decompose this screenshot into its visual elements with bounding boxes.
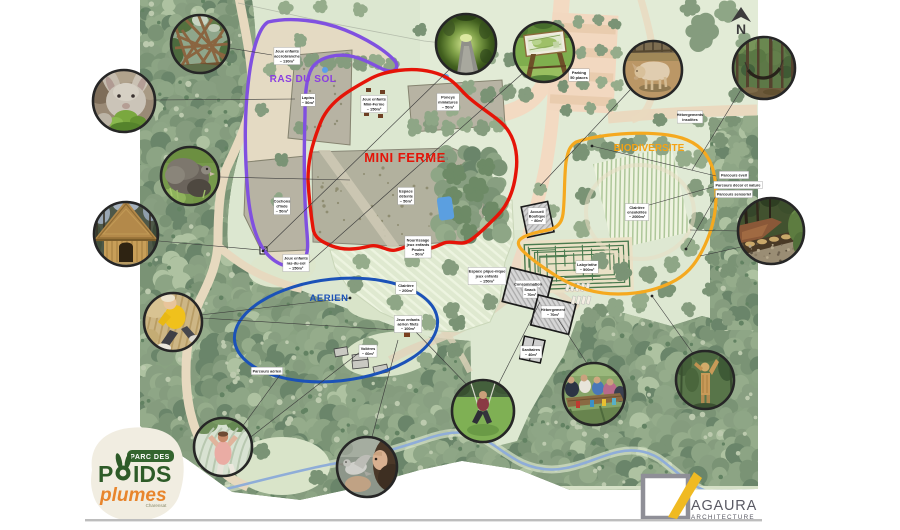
svg-text:Hébergement: Hébergement bbox=[541, 308, 566, 312]
svg-text:~ 70m²: ~ 70m² bbox=[524, 293, 537, 297]
svg-text:Boutique: Boutique bbox=[529, 215, 545, 219]
svg-text:P: P bbox=[98, 461, 113, 487]
svg-text:aérien filets: aérien filets bbox=[397, 323, 418, 327]
svg-text:Parcours aérien: Parcours aérien bbox=[253, 370, 282, 374]
svg-text:Parcours éveil: Parcours éveil bbox=[721, 174, 747, 178]
svg-text:RAS DU SOL: RAS DU SOL bbox=[270, 74, 337, 85]
svg-text:IDS: IDS bbox=[133, 461, 171, 487]
svg-text:insolites: insolites bbox=[682, 118, 697, 122]
svg-text:~ 50m²: ~ 50m² bbox=[276, 208, 289, 213]
svg-text:~ 40m²: ~ 40m² bbox=[525, 353, 538, 357]
svg-text:Sanitaires: Sanitaires bbox=[522, 348, 540, 352]
svg-text:Clairière: Clairière bbox=[629, 206, 644, 210]
svg-text:Accueil: Accueil bbox=[530, 210, 544, 214]
svg-text:~ 50m²: ~ 50m² bbox=[442, 104, 455, 109]
svg-text:AGAURA: AGAURA bbox=[691, 498, 757, 514]
svg-text:Hébergements: Hébergements bbox=[677, 113, 703, 117]
svg-text:Charensat: Charensat bbox=[146, 503, 168, 508]
svg-text:50 places: 50 places bbox=[570, 75, 588, 80]
svg-text:~ 200m²: ~ 200m² bbox=[399, 288, 414, 293]
svg-text:~ 500m²: ~ 500m² bbox=[580, 267, 595, 272]
svg-text:~ 100m²: ~ 100m² bbox=[401, 327, 416, 331]
svg-text:Volières: Volières bbox=[361, 347, 376, 351]
svg-text:~ 2 ha: ~ 2 ha bbox=[434, 156, 448, 162]
svg-text:Parcours décor et nature: Parcours décor et nature bbox=[716, 184, 761, 188]
svg-text:BIODIVERSITE: BIODIVERSITE bbox=[614, 143, 685, 154]
svg-text:~ 50m²: ~ 50m² bbox=[302, 100, 315, 105]
svg-text:Snack: Snack bbox=[524, 288, 536, 292]
svg-text:~ 50m²: ~ 50m² bbox=[412, 252, 425, 257]
svg-text:AERIEN: AERIEN bbox=[310, 293, 349, 304]
svg-text:~ 130m²: ~ 130m² bbox=[280, 58, 295, 63]
svg-text:~ 70m²: ~ 70m² bbox=[547, 313, 560, 317]
svg-text:~ 50m²: ~ 50m² bbox=[400, 198, 413, 203]
svg-text:~ 150m²: ~ 150m² bbox=[480, 278, 495, 283]
svg-text:Jeux enfants: Jeux enfants bbox=[396, 318, 419, 322]
svg-text:~ 2000m²: ~ 2000m² bbox=[629, 215, 646, 219]
svg-text:ensoleillée: ensoleillée bbox=[627, 211, 646, 215]
svg-text:Parcours sensoriel: Parcours sensoriel bbox=[717, 193, 751, 197]
svg-text:PARC DES: PARC DES bbox=[130, 454, 170, 461]
svg-text:~ 80m²: ~ 80m² bbox=[531, 219, 544, 223]
svg-text:~ 150m²: ~ 150m² bbox=[289, 265, 304, 270]
svg-text:N: N bbox=[736, 21, 746, 37]
svg-text:~ 150m²: ~ 150m² bbox=[367, 106, 382, 111]
svg-text:~ 60m²: ~ 60m² bbox=[362, 352, 375, 356]
